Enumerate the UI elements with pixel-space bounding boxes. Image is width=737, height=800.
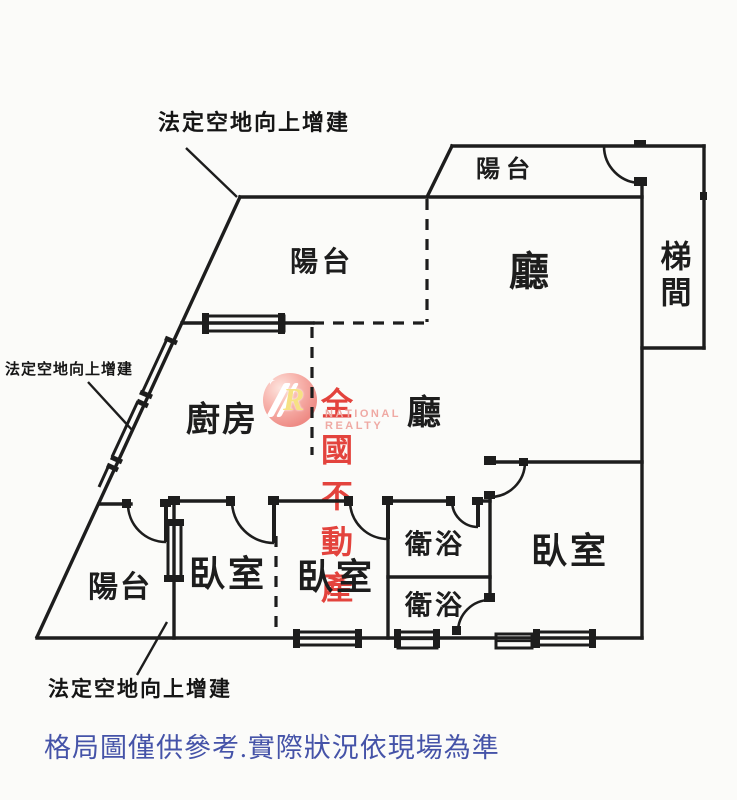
room-label-dining-hall: 廳: [407, 396, 441, 430]
room-label-bedroom-left: 臥室: [189, 556, 267, 592]
room-label-bedroom-right: 臥室: [531, 533, 609, 569]
room-label-balcony-bottom: 陽台: [88, 573, 152, 603]
floor-plan-page: R ✦ 全國不動產 NATIONAL REALTY: [0, 0, 737, 800]
room-label-bathroom-lower: 衛浴: [405, 593, 465, 620]
room-label-living-room: 廳: [509, 252, 549, 292]
annotation-bottom: 法定空地向上增建: [48, 679, 232, 700]
room-label-balcony-middle: 陽台: [290, 248, 354, 276]
disclaimer-text: 格局圖僅供參考.實際狀況依現場為準: [44, 726, 500, 765]
room-label-stairwell: 梯間: [658, 240, 689, 312]
room-label-bathroom-upper: 衛浴: [405, 532, 465, 559]
annotation-left: 法定空地向上增建: [5, 362, 133, 377]
room-label-bedroom-middle: 臥室: [297, 559, 375, 595]
room-label-kitchen: 廚房: [186, 403, 258, 437]
room-label-balcony-top: 陽台: [476, 158, 536, 182]
annotation-top: 法定空地向上增建: [158, 112, 350, 134]
